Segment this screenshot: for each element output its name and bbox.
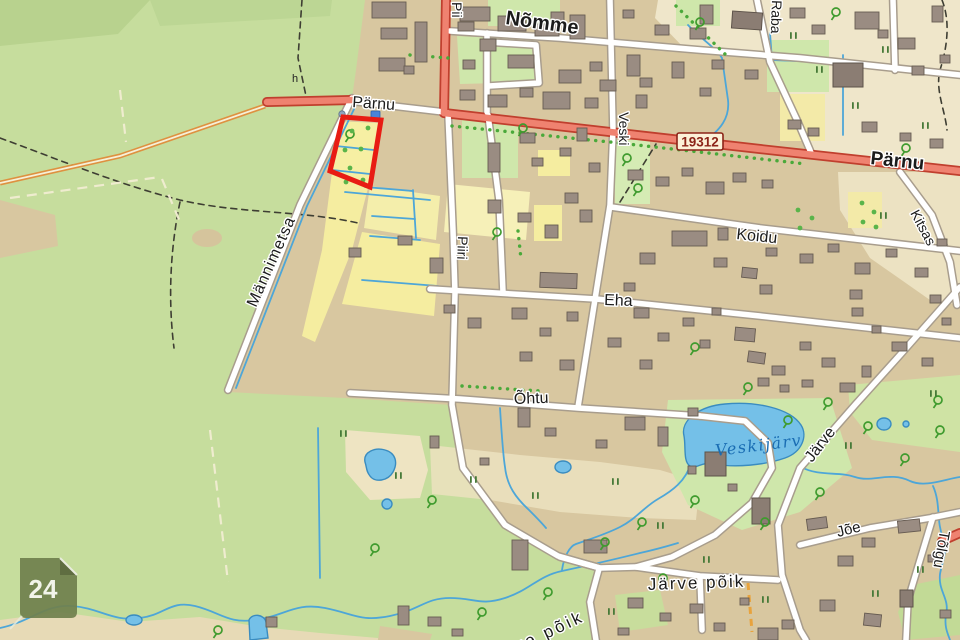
sheet-number-text: 24 — [29, 574, 58, 604]
map-canvas[interactable]: h Nõmme Pärnu Pärnu Pii Piiri Veski Raba… — [0, 0, 960, 640]
street-label-ohtu: Õhtu — [513, 387, 548, 408]
street-label-raba: Raba — [768, 0, 785, 34]
street-label-eha: Eha — [604, 292, 633, 310]
street-label-veski: Veski — [616, 112, 632, 145]
street-label-parnu-west: Pärnu — [352, 94, 396, 114]
small-pond — [365, 449, 396, 480]
map-symbol-h: h — [292, 73, 298, 85]
road-number-text: 19312 — [681, 135, 719, 150]
map-viewport[interactable]: h Nõmme Pärnu Pärnu Pii Piiri Veski Raba… — [0, 0, 960, 640]
street-label-piiri-top: Pii — [449, 2, 465, 18]
street-label-piiri: Piiri — [454, 236, 471, 260]
street-label-jarve-poik: Järve põik — [647, 572, 745, 594]
road-number-badge: 19312 — [677, 133, 723, 150]
